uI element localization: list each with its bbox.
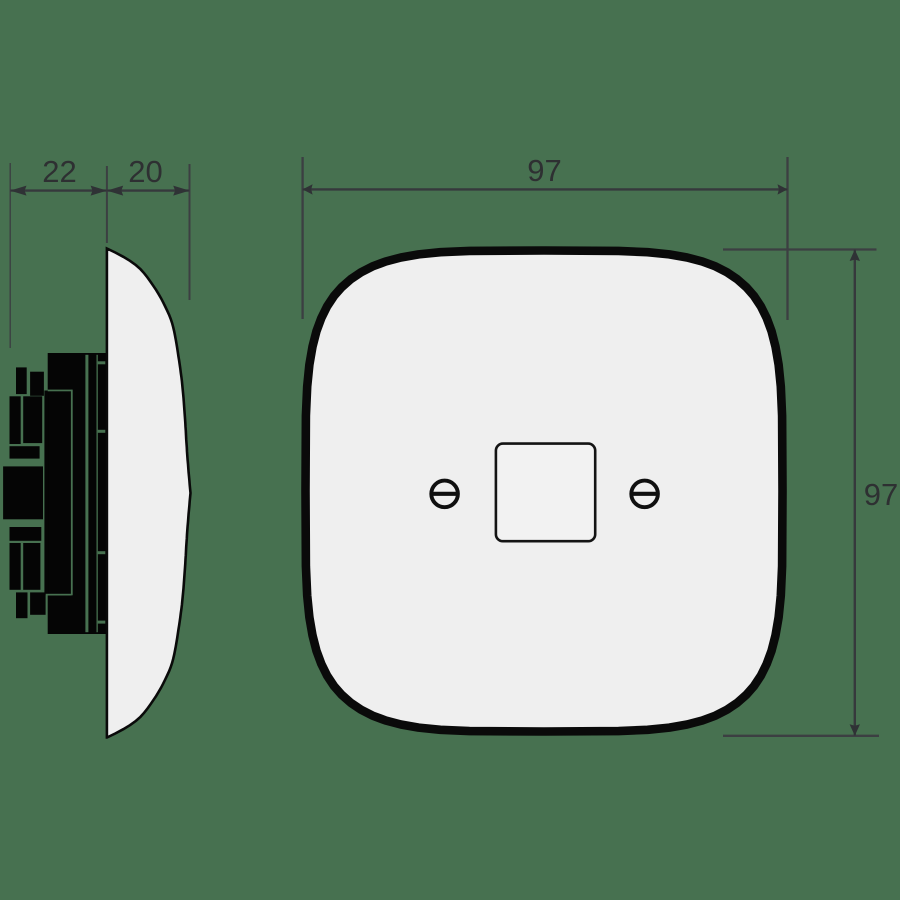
svg-text:20: 20	[128, 154, 162, 189]
svg-text:97: 97	[864, 477, 898, 512]
svg-text:97: 97	[527, 153, 561, 188]
svg-text:22: 22	[42, 154, 76, 189]
